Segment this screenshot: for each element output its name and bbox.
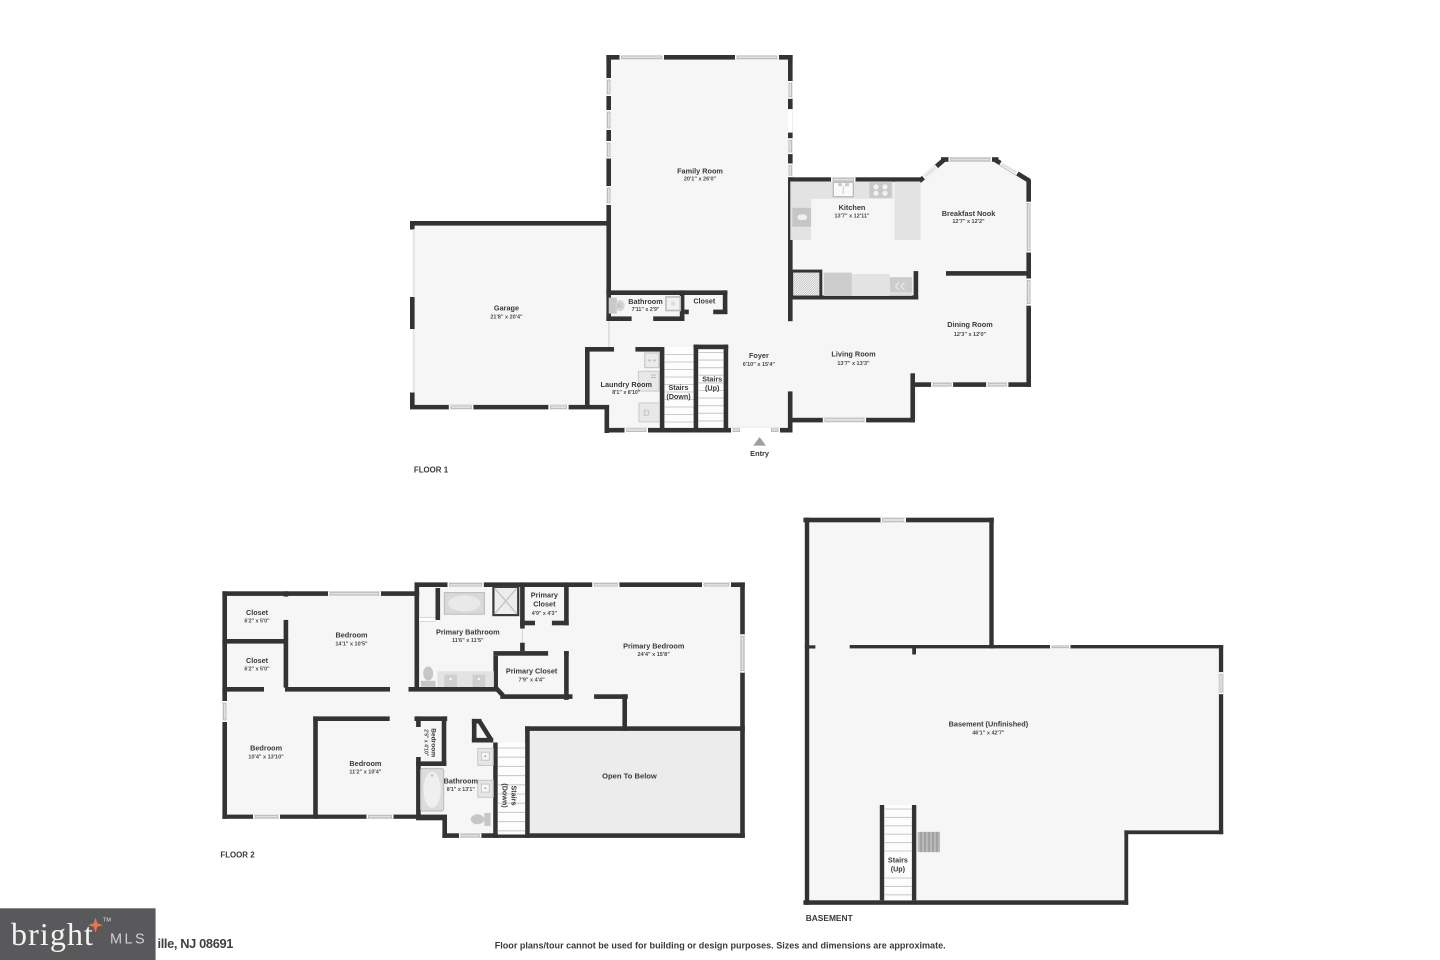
svg-text:Entry: Entry [750,449,770,458]
svg-text:12'7" x 12'2": 12'7" x 12'2" [952,219,985,225]
svg-text:2'6" x 4'10": 2'6" x 4'10" [423,729,429,757]
svg-text:11'6" x 11'5": 11'6" x 11'5" [452,638,484,644]
svg-text:Stairs: Stairs [510,786,519,806]
svg-text:6'2" x 5'0": 6'2" x 5'0" [244,619,270,625]
svg-text:D: D [643,408,650,418]
svg-text:Bathroom: Bathroom [628,297,663,306]
svg-text:Open To Below: Open To Below [602,772,657,781]
svg-text:FLOOR 1: FLOOR 1 [414,466,449,475]
svg-text:Primary: Primary [531,591,559,600]
svg-text:Bedroom: Bedroom [335,631,368,640]
svg-text:Bedroom: Bedroom [250,744,283,753]
svg-text:24'4" x 15'8": 24'4" x 15'8" [638,652,671,658]
svg-text:14'1" x 10'5": 14'1" x 10'5" [335,642,368,648]
svg-text:Bedroom: Bedroom [349,759,382,768]
svg-text:13'7" x 13'3": 13'7" x 13'3" [837,361,870,367]
svg-text:13'7" x 12'11": 13'7" x 12'11" [834,214,869,220]
svg-text:Family Room: Family Room [677,167,723,176]
svg-text:(Down): (Down) [500,783,509,808]
svg-text:6'2" x 5'0": 6'2" x 5'0" [244,667,270,673]
svg-text:11'2" x 10'4": 11'2" x 10'4" [349,770,381,776]
svg-text:Basement (Unfinished): Basement (Unfinished) [949,720,1029,729]
svg-text:Laundry Room: Laundry Room [601,380,653,389]
svg-text:46'1" x 42'7": 46'1" x 42'7" [972,730,1005,736]
svg-text:bright: bright [11,916,94,952]
svg-text:Primary Bathroom: Primary Bathroom [436,628,500,637]
svg-text:Closet: Closet [693,296,716,305]
svg-text:7'9" x 4'4": 7'9" x 4'4" [519,677,546,683]
svg-text:6'10" x 15'4": 6'10" x 15'4" [743,362,776,368]
svg-text:TM: TM [103,918,111,924]
svg-text:Bedroom: Bedroom [430,728,437,757]
svg-text:(Down): (Down) [666,392,691,401]
svg-text:Closet: Closet [246,656,269,665]
svg-text:Closet: Closet [533,600,556,609]
svg-text:ille, NJ 08691: ille, NJ 08691 [158,936,234,951]
svg-text:8'1" x 13'1": 8'1" x 13'1" [447,787,476,793]
svg-text:Primary Closet: Primary Closet [506,667,558,676]
svg-text:7'11" x 2'9": 7'11" x 2'9" [632,307,660,313]
svg-text:20'1" x 26'0": 20'1" x 26'0" [684,177,717,183]
svg-text:21'8" x 20'4": 21'8" x 20'4" [490,314,523,320]
svg-text:10'4" x 13'10": 10'4" x 13'10" [248,754,284,760]
svg-text:Stairs: Stairs [702,375,722,384]
svg-text:Primary Bedroom: Primary Bedroom [623,641,685,650]
svg-text:MLS: MLS [110,932,147,948]
svg-text:BASEMENT: BASEMENT [806,913,854,923]
svg-text:4'9" x 4'3": 4'9" x 4'3" [532,611,558,617]
svg-text:Garage: Garage [494,303,519,312]
svg-text:Closet: Closet [246,608,269,617]
svg-text:Kitchen: Kitchen [839,203,866,212]
svg-text:Foyer: Foyer [749,351,769,360]
svg-text:Stairs: Stairs [888,856,908,865]
svg-text:Living Room: Living Room [831,350,876,359]
svg-text:FLOOR 2: FLOOR 2 [220,851,255,860]
svg-text:Stairs: Stairs [669,383,689,392]
svg-text:8'1" x 8'10": 8'1" x 8'10" [612,390,641,396]
svg-text:(Up): (Up) [891,865,906,874]
svg-text:Floor plans/tour cannot be use: Floor plans/tour cannot be used for buil… [495,941,946,951]
svg-text:12'3" x 12'0": 12'3" x 12'0" [954,332,987,338]
svg-text:Breakfast Nook: Breakfast Nook [942,209,996,218]
svg-text:Bathroom: Bathroom [444,777,479,786]
svg-text:Dining Room: Dining Room [947,320,993,329]
svg-text:(Up): (Up) [705,384,720,393]
